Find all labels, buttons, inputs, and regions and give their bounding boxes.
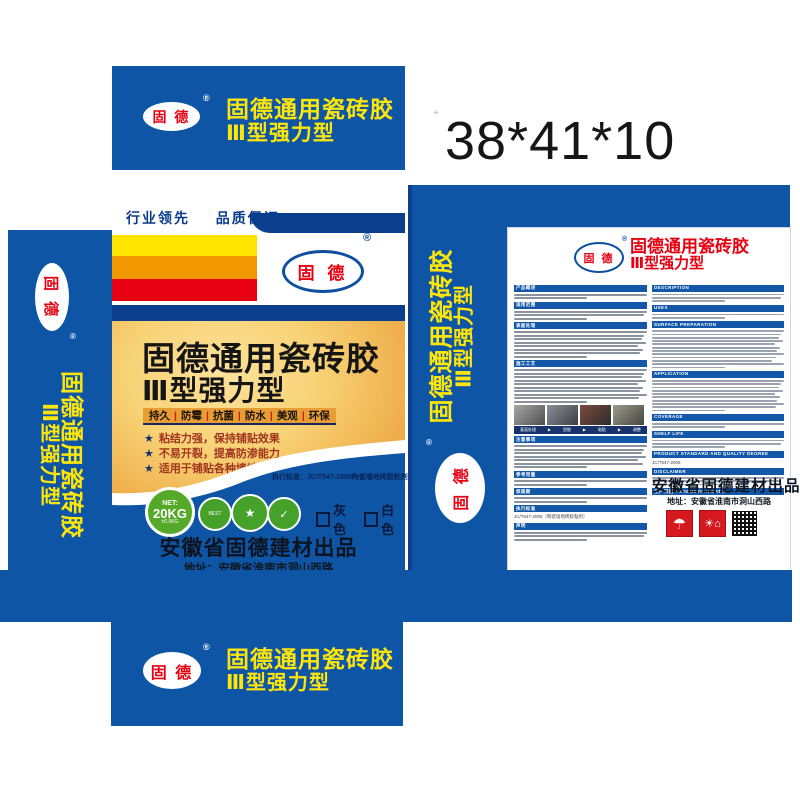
arrow-icon: ▶ — [548, 427, 551, 432]
text-line — [652, 343, 775, 345]
brand-logo-oval: 固 德 — [435, 453, 485, 523]
feature-separator: | — [302, 410, 305, 422]
section-header: 参考用量 — [514, 471, 647, 478]
product-title-line2: Ⅲ型强力型 — [226, 673, 330, 694]
text-line — [514, 380, 646, 382]
text-line — [514, 484, 587, 486]
text-line — [652, 300, 725, 302]
bottom-band — [0, 570, 792, 622]
section-header: 施工工艺 — [514, 360, 647, 367]
product-title-line2: Ⅲ型强力型 — [226, 123, 335, 145]
brand-logo-text: 固 德 — [448, 465, 472, 510]
text-line — [514, 390, 640, 392]
features-bar: 持久|防霉|抗菌|防水|美观|环保 — [143, 408, 336, 425]
text-line — [514, 314, 644, 316]
size-label: 38*41*10 — [445, 110, 675, 172]
text-line — [514, 342, 646, 344]
brand-logo-oval: 固 德 — [35, 263, 69, 331]
text-line — [652, 380, 784, 382]
text-line — [652, 340, 783, 342]
certified-product-badge: ✓ — [267, 497, 301, 531]
stripe-orange — [112, 256, 257, 279]
keep-dry-icon: ☂ — [666, 510, 693, 537]
standard-line: 执行标准：JC/T547-2005陶瓷墙地砖胶粘剂 — [272, 472, 408, 482]
section-header: APPLICATION — [652, 371, 784, 378]
brand-logo-oval: 固 德 — [143, 652, 201, 689]
text-line — [652, 357, 776, 359]
packaging-diecut-sheet: + 38*41*10 固 德 ® 固德通用瓷砖胶 Ⅲ型强力型 行业领先 品质保证… — [0, 0, 800, 800]
text-line — [514, 345, 638, 347]
process-photo — [580, 405, 611, 425]
trust-ribbon-badge: ★ — [231, 494, 269, 532]
front-panel: 行业领先 品质保证 固 德 ® 固德通用瓷砖胶 Ⅲ型强力型 持久|防霉|抗菌|防… — [112, 170, 405, 622]
registered-mark: ® — [426, 438, 432, 447]
registered-mark: ® — [203, 642, 210, 652]
text-line — [514, 497, 647, 499]
vertical-title: 固德通用瓷砖胶 Ⅲ型强力型 — [29, 360, 93, 550]
brand-logo-text: 固 德 — [42, 275, 63, 318]
text-line — [514, 294, 647, 296]
registered-mark: ® — [70, 332, 76, 341]
section-header: COVERAGE — [652, 414, 784, 421]
text-line — [514, 349, 643, 351]
back-title-line1: 固德通用瓷砖胶 — [630, 238, 749, 257]
feature-separator: | — [206, 410, 209, 422]
section-header: 适用范围 — [514, 302, 647, 309]
text-line — [652, 406, 776, 408]
feature-item: 防水 — [245, 408, 266, 423]
net-weight: 20KG — [153, 507, 187, 520]
text-line — [514, 459, 638, 461]
text-line — [652, 363, 784, 365]
producer-text: 安徽省固德建材出品 — [652, 474, 786, 496]
text-line — [514, 352, 640, 354]
process-step-label: 刮胶 — [563, 427, 571, 433]
text-line — [652, 297, 781, 299]
section-header: SHELF LIFE — [652, 431, 784, 438]
navy-swoosh-top — [250, 213, 405, 233]
text-line — [514, 456, 646, 458]
back-panel: 固 德 ® 固德通用瓷砖胶 Ⅲ型强力型 产品概述适用范围表面处理施工工艺基面处理… — [508, 228, 790, 570]
front-title-line2: Ⅲ型强力型 — [142, 377, 285, 405]
feature-separator: | — [238, 410, 241, 422]
text-line — [514, 401, 587, 403]
registered-mark: ® — [622, 236, 627, 243]
process-photos — [514, 405, 647, 425]
text-line — [514, 373, 644, 375]
net-tolerance: ±0.5KG — [162, 520, 179, 525]
feature-item: 防霉 — [181, 408, 202, 423]
registered-mark: ® — [203, 93, 210, 103]
stripe-red — [112, 279, 257, 301]
text-line — [652, 393, 775, 395]
text-line — [514, 369, 647, 371]
section-header: 表面处理 — [514, 322, 647, 329]
producer-text: 安徽省固德建材出品 — [112, 532, 405, 562]
text-line — [652, 423, 784, 425]
text-line — [652, 367, 725, 369]
care-icons-row: ☂ ☀⌂ — [666, 510, 757, 537]
section-header: 注意事项 — [514, 436, 647, 443]
text-line — [652, 360, 772, 362]
vertical-title: 固德通用瓷砖胶 Ⅲ型强力型 — [428, 244, 478, 429]
feature-separator: | — [174, 410, 177, 422]
text-line — [514, 539, 587, 541]
section-header: USES — [652, 305, 784, 312]
product-title-line1: 固德通用瓷砖胶 — [429, 249, 454, 424]
best-seal-badge: BEST — [198, 497, 232, 531]
section-header: 保质期 — [514, 488, 647, 495]
process-step-label: 基面处理 — [520, 427, 536, 433]
product-title-line1: 固德通用瓷砖胶 — [59, 371, 83, 539]
text-line — [514, 356, 587, 358]
text-line — [514, 466, 587, 468]
process-step-label: 调整 — [633, 427, 641, 433]
text-line — [514, 501, 587, 503]
text-line — [514, 387, 643, 389]
navy-band — [112, 305, 405, 321]
keep-away-from-sun-icon: ☀⌂ — [699, 510, 726, 537]
process-photo — [613, 405, 644, 425]
middle-gusset-panel: 固德通用瓷砖胶 Ⅲ型强力型 ® 固 德 — [408, 185, 511, 622]
text-line — [652, 387, 779, 389]
arrow-icon: ▶ — [583, 427, 586, 432]
brand-logo-oval: 固 德 — [574, 242, 624, 273]
color-checkbox — [364, 512, 378, 527]
text-line — [652, 337, 779, 339]
text-line — [652, 314, 784, 316]
brand-logo-text: 固 德 — [153, 107, 191, 127]
text-line — [652, 334, 781, 336]
crop-mark: + — [433, 108, 439, 119]
text-line — [514, 535, 644, 537]
text-line — [514, 331, 647, 333]
feature-separator: | — [270, 410, 273, 422]
brand-logo-oval: 固 德 — [282, 250, 364, 293]
text-line — [514, 383, 638, 385]
section-header: DESCRIPTION — [652, 285, 784, 292]
text-line — [514, 318, 587, 320]
left-gusset-panel: 固 德 ® 固德通用瓷砖胶 Ⅲ型强力型 — [8, 230, 112, 622]
text-line — [652, 446, 725, 448]
text-line — [652, 440, 784, 442]
product-title-line1: 固德通用瓷砖胶 — [226, 647, 394, 671]
section-header: SURFACE PREPARATION — [652, 321, 784, 328]
arrow-icon: ▶ — [618, 427, 621, 432]
text-line — [514, 480, 647, 482]
text-line — [652, 396, 780, 398]
net-weight-badge: NET: 20KG ±0.5KG — [145, 487, 195, 537]
text-line — [514, 338, 642, 340]
brand-logo-text: 固 德 — [583, 250, 614, 266]
color-checkbox — [316, 512, 330, 527]
feature-item: 美观 — [277, 408, 298, 423]
process-photo — [514, 405, 545, 425]
top-flap-panel: 固 德 ® 固德通用瓷砖胶 Ⅲ型强力型 — [112, 66, 405, 170]
text-line — [652, 403, 784, 405]
text-line — [652, 400, 777, 402]
text-line — [652, 350, 777, 352]
text-line — [514, 445, 647, 447]
text-line — [652, 426, 725, 428]
text-line — [514, 397, 639, 399]
text-line — [514, 394, 647, 396]
registered-mark: ® — [363, 232, 371, 244]
text-line — [514, 297, 587, 299]
brand-logo-text: 固 德 — [151, 659, 193, 683]
text-line — [514, 452, 642, 454]
address-text: 地址：安徽省淮南市洞山西路 — [652, 496, 786, 507]
text-line — [652, 294, 784, 296]
section-header: PRODUCT STANDARD AND QUALITY DEGREE — [652, 451, 784, 458]
text-line — [652, 317, 725, 319]
section-body-text: JC/T547-2005（陶瓷墙地砖胶粘剂） — [514, 514, 647, 520]
text-line — [652, 390, 783, 392]
section-header: 执行标准 — [514, 505, 647, 512]
text-line — [652, 410, 725, 412]
section-header: 产品概述 — [514, 285, 647, 292]
product-title-line2: Ⅲ型强力型 — [455, 284, 476, 388]
product-title-line2: Ⅲ型强力型 — [38, 403, 59, 507]
process-photo — [547, 405, 578, 425]
front-title-line1: 固德通用瓷砖胶 — [142, 342, 380, 375]
bottom-flap-panel: 固 德 ® 固德通用瓷砖胶 Ⅲ型强力型 — [111, 622, 403, 726]
qr-code — [732, 511, 757, 536]
brand-logo-text: 固 德 — [298, 259, 349, 284]
text-line — [652, 443, 781, 445]
section-header: 声明 — [514, 523, 647, 530]
slogan-left: 行业领先 — [126, 210, 190, 226]
section-body-text: JC/T547-2005 — [652, 460, 784, 466]
sections-column-cn: 产品概述适用范围表面处理施工工艺基面处理▶刮胶▶粘贴▶调整注意事项参考用量保质期… — [514, 282, 647, 542]
stripe-yellow — [112, 235, 257, 256]
text-line — [514, 532, 647, 534]
text-line — [652, 347, 780, 349]
product-title-line1: 固德通用瓷砖胶 — [226, 97, 394, 121]
back-title-line2: Ⅲ型强力型 — [630, 256, 704, 273]
feature-item: 抗菌 — [213, 408, 234, 423]
text-line — [514, 463, 643, 465]
process-steps-bar: 基面处理▶刮胶▶粘贴▶调整 — [514, 426, 647, 434]
text-line — [652, 383, 781, 385]
feature-item: 持久 — [149, 408, 170, 423]
text-line — [652, 353, 784, 355]
text-line — [514, 311, 647, 313]
text-line — [652, 330, 784, 332]
text-line — [514, 449, 644, 451]
sections-column-en: DESCRIPTIONUSESSURFACE PREPARATIONAPPLIC… — [652, 282, 784, 497]
brand-logo-oval: 固 德 — [143, 102, 200, 131]
feature-item: 环保 — [309, 408, 330, 423]
text-line — [514, 335, 644, 337]
text-line — [514, 376, 642, 378]
process-step-label: 粘贴 — [598, 427, 606, 433]
